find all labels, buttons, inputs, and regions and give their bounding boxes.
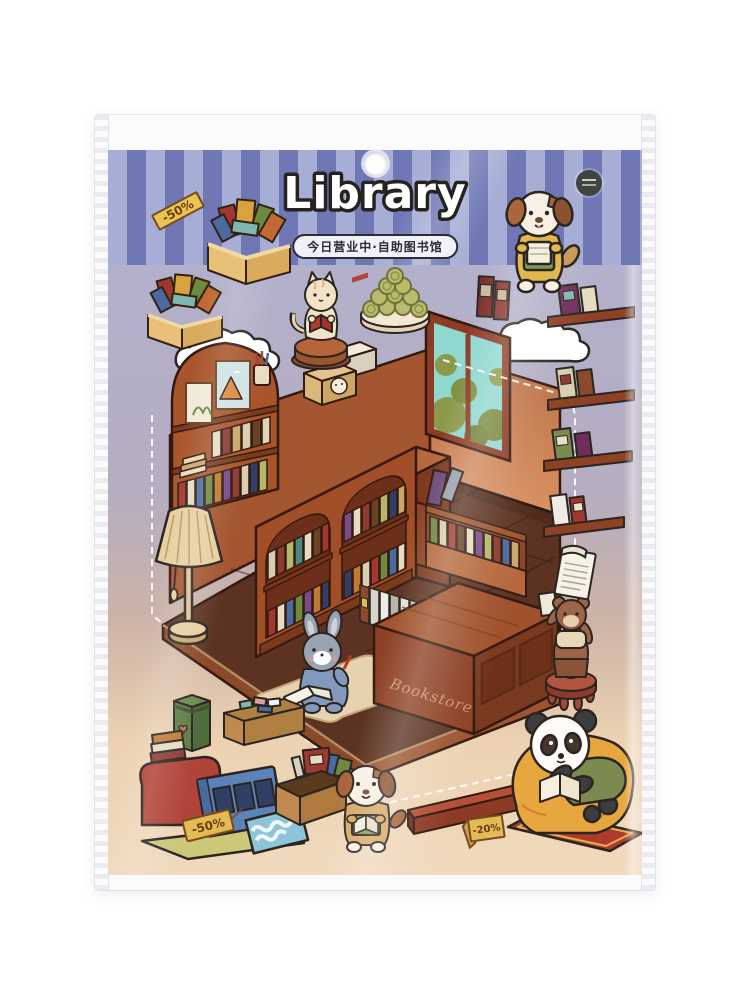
subtitle-pill: 今日营业中·自助图书馆 xyxy=(292,234,458,259)
package-serrated-edge-right xyxy=(641,115,655,890)
window-with-bushes xyxy=(426,311,510,461)
cat-reading-on-stool xyxy=(292,272,350,369)
product-photo: { "header": { "title": "Library", "subti… xyxy=(0,0,750,1000)
panda-on-beanbag xyxy=(508,710,642,851)
title-text: Library xyxy=(283,168,466,219)
floor-discount-tag: -20% xyxy=(462,815,506,848)
arched-bookshelf xyxy=(172,343,278,517)
package-serrated-edge-left xyxy=(95,115,109,890)
brand-badge xyxy=(576,170,602,196)
paper-scroll xyxy=(554,544,596,600)
puppy-reading xyxy=(334,766,409,852)
sticker-sheet: Bookstore xyxy=(108,265,642,875)
sticker-scene: Bookstore xyxy=(108,265,642,875)
stationery-box xyxy=(224,697,304,745)
plastic-package: Library 今日营业中·自助图书馆 -50% xyxy=(95,115,655,890)
hang-hole xyxy=(364,152,387,175)
plate-of-cookies xyxy=(361,268,429,333)
clearance-pile: -50% xyxy=(140,731,360,859)
striped-header-band: Library 今日营业中·自助图书馆 -50% xyxy=(108,150,642,265)
